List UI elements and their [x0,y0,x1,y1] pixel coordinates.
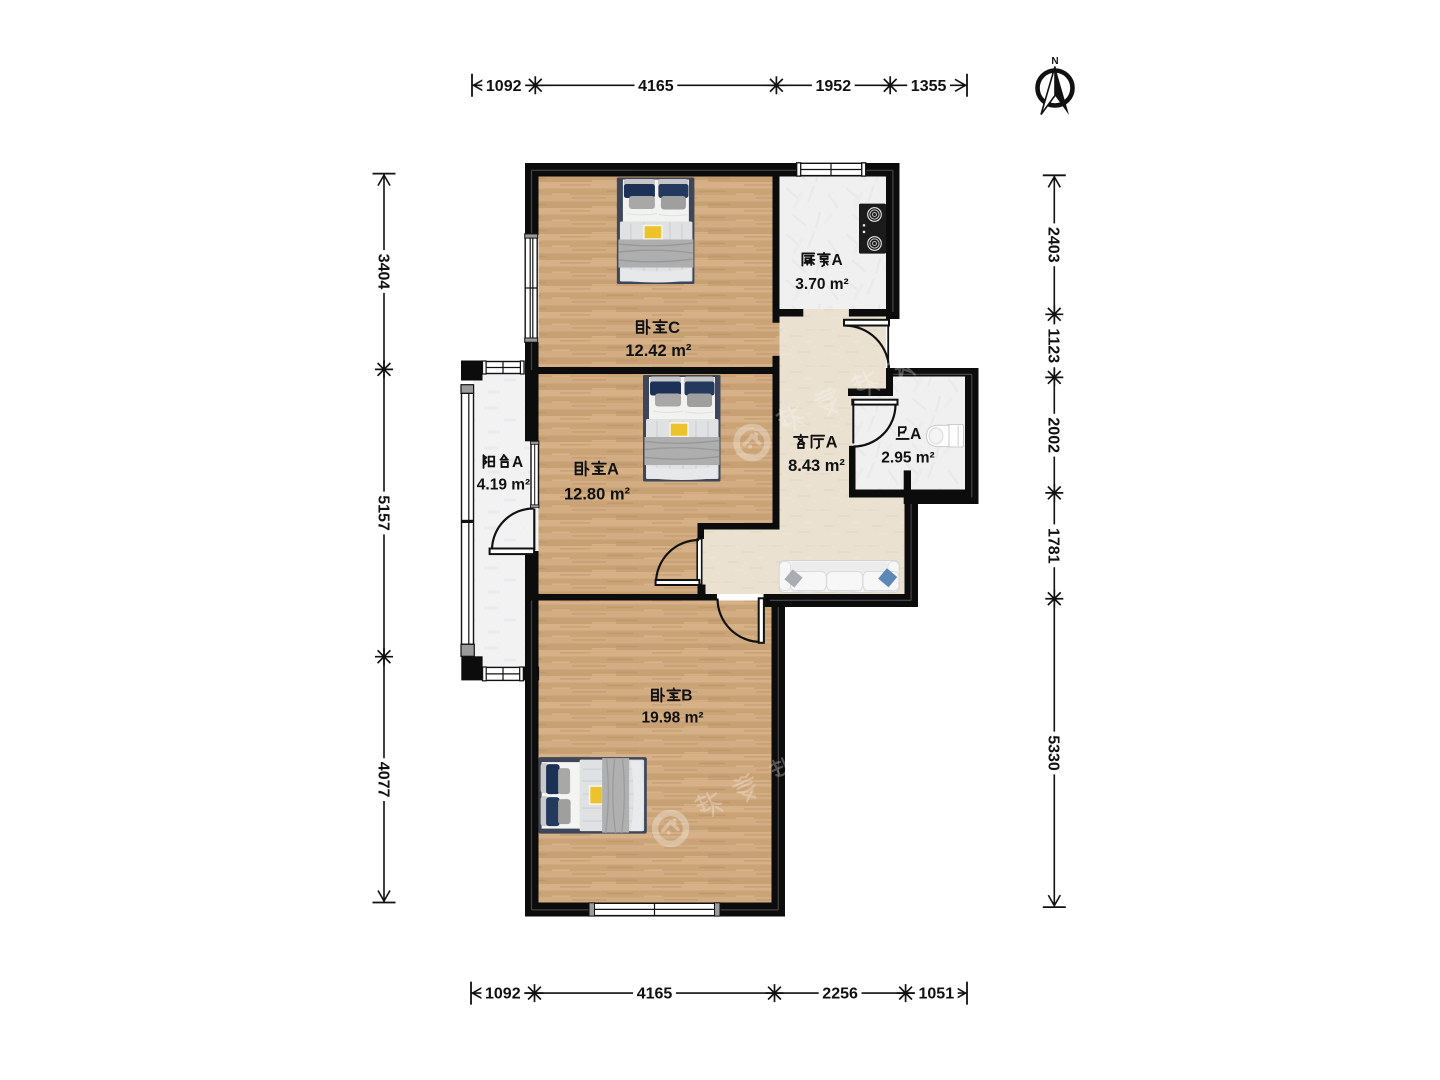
svg-text:4.19 m²: 4.19 m² [477,477,530,494]
svg-text:4077: 4077 [374,762,391,798]
svg-text:2256: 2256 [822,986,858,1003]
svg-text:2002: 2002 [1045,417,1062,453]
svg-text:1952: 1952 [816,78,852,95]
svg-text:A: A [607,460,619,478]
svg-text:1092: 1092 [486,78,522,95]
svg-text:1092: 1092 [485,986,521,1003]
svg-text:2403: 2403 [1045,227,1062,263]
svg-text:A: A [831,252,842,269]
svg-text:N: N [1051,56,1058,67]
svg-text:19.98 m²: 19.98 m² [641,710,703,727]
svg-text:1781: 1781 [1045,528,1062,564]
svg-text:3404: 3404 [374,254,391,290]
svg-text:A: A [910,426,921,443]
svg-text:4165: 4165 [638,78,674,95]
svg-text:3.70 m²: 3.70 m² [795,276,848,293]
svg-text:12.42 m²: 12.42 m² [625,342,692,360]
svg-text:A: A [826,433,838,451]
svg-text:B: B [681,688,692,705]
svg-text:5157: 5157 [374,495,391,531]
svg-text:8.43 m²: 8.43 m² [788,457,845,475]
svg-text:4165: 4165 [637,986,673,1003]
svg-text:1355: 1355 [911,78,947,95]
svg-text:A: A [512,454,523,471]
svg-text:5330: 5330 [1045,735,1062,771]
svg-text:12.80 m²: 12.80 m² [564,485,631,503]
svg-text:2.95 m²: 2.95 m² [881,450,934,467]
svg-text:1123: 1123 [1045,328,1062,363]
svg-text:1051: 1051 [919,986,955,1003]
svg-text:C: C [668,319,680,337]
